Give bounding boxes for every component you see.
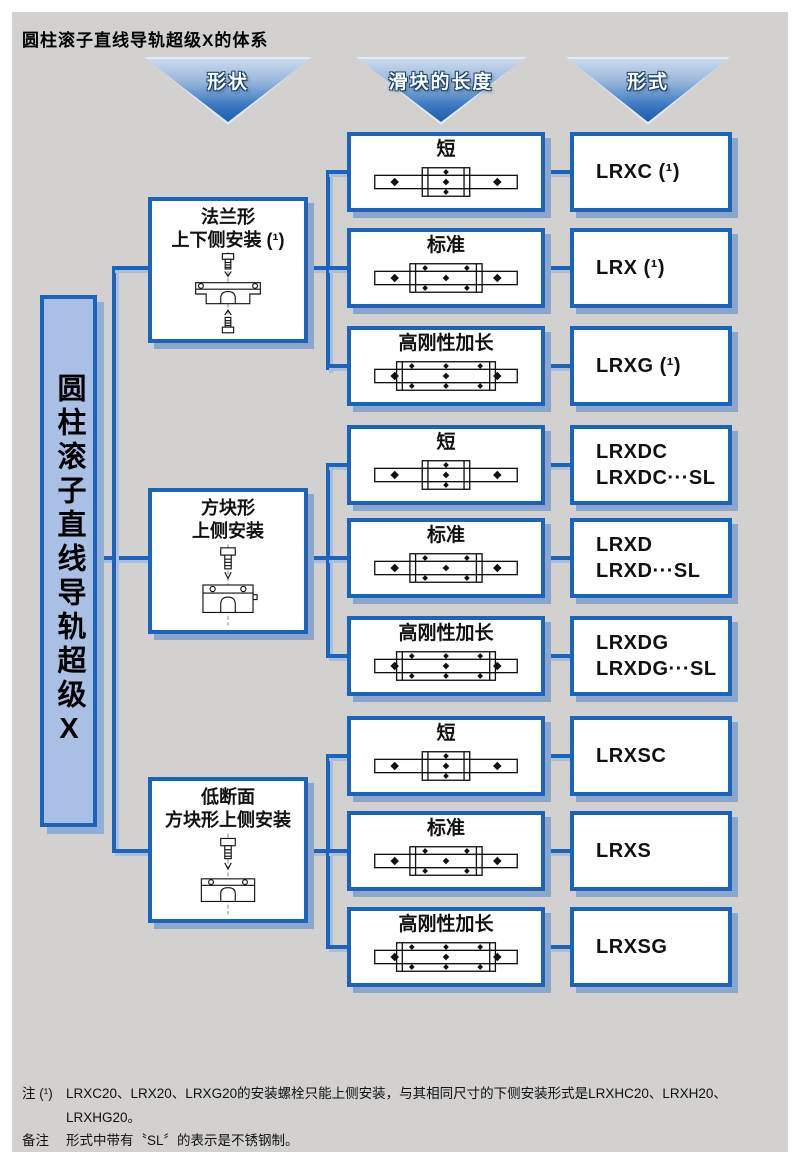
connector-trunk: [112, 266, 116, 853]
model-box-lrxsg: LRXSG: [570, 907, 732, 987]
shape-box-square: 方块形 上侧安装: [148, 488, 308, 634]
footnote-1-label: 注 (¹): [22, 1082, 66, 1129]
page-title: 圆柱滚子直线导轨超级X的体系: [22, 26, 268, 51]
footnotes: 注 (¹) LRXC20、LRX20、LRXG20的安装螺栓只能上侧安装，与其相…: [22, 1082, 770, 1153]
connector-length-to-model-row1: [543, 170, 572, 174]
length-label: 短: [436, 432, 455, 454]
length-label: 高刚性加长: [398, 333, 493, 355]
connector-root-to-shape2: [92, 556, 150, 560]
connector-length-to-model-row2: [543, 266, 572, 270]
connector-group1-spine: [326, 170, 330, 370]
footnote-1: 注 (¹) LRXC20、LRX20、LRXG20的安装螺栓只能上侧安装，与其相…: [22, 1082, 770, 1129]
shape-header-arrow: 形状: [144, 57, 312, 125]
connector-spine-to-length-row5: [326, 556, 348, 560]
connector-spine-to-length-row7: [326, 754, 348, 758]
rail-block-drawing-standard: [370, 840, 522, 887]
length-label: 标准: [427, 525, 465, 547]
length-box-row7: 短: [347, 716, 545, 796]
connector-length-to-model-row7: [543, 754, 572, 758]
length-box-row3: 高刚性加长: [347, 326, 545, 406]
connector-length-to-model-row5: [543, 556, 572, 560]
shape-header-label: 形状: [144, 67, 312, 94]
model-label: LRXSG: [596, 934, 728, 960]
length-label: 标准: [427, 235, 465, 257]
model-label-2: LRXDC···SL: [596, 465, 728, 491]
type-header-arrow: 形式: [566, 57, 730, 125]
model-label: LRXDC: [596, 439, 728, 465]
low-profile-mount-diagram: [174, 832, 282, 916]
connector-spine-to-length-row8: [326, 849, 348, 853]
length-label: 标准: [427, 818, 465, 840]
length-box-row8: 标准: [347, 811, 545, 891]
footnote-2: 备注 形式中带有〝SL〞的表示是不锈钢制。: [22, 1129, 770, 1153]
slider-length-header-label: 滑块的长度: [356, 67, 526, 94]
model-box-lrxs: LRXS: [570, 811, 732, 891]
model-label: LRX (¹): [596, 255, 728, 281]
rail-block-drawing-long: [370, 645, 522, 692]
connector-length-to-model-row3: [543, 364, 572, 368]
model-label: LRXS: [596, 838, 728, 864]
slider-length-header-arrow: 滑块的长度: [356, 57, 526, 125]
connector-length-to-model-row9: [543, 945, 572, 949]
model-label-2: LRXDG···SL: [596, 656, 728, 682]
length-box-row2: 标准: [347, 228, 545, 308]
shape-label-line2: 方块形上侧安装: [165, 809, 291, 832]
root-product-label: 圆柱滚子直线导轨超级X: [54, 373, 83, 750]
connector-spine-to-length-row3: [326, 364, 348, 368]
connector-spine-to-length-row2: [326, 266, 348, 270]
rail-block-drawing-long: [370, 936, 522, 983]
connector-spine-to-length-row1: [326, 170, 348, 174]
model-label: LRXSC: [596, 743, 728, 769]
length-label: 短: [436, 723, 455, 745]
connector-length-to-model-row8: [543, 849, 572, 853]
model-box-lrxdc: LRXDC LRXDC···SL: [570, 425, 732, 505]
length-box-row5: 标准: [347, 518, 545, 598]
shape-label-line1: 法兰形: [201, 206, 255, 229]
footnote-2-text: 形式中带有〝SL〞的表示是不锈钢制。: [66, 1129, 770, 1153]
shape-label-line1: 方块形: [201, 497, 255, 520]
square-top-mount-diagram: [174, 543, 282, 627]
length-box-row9: 高刚性加长: [347, 907, 545, 987]
connector-length-to-model-row6: [543, 654, 572, 658]
rail-block-drawing-standard: [370, 257, 522, 304]
model-box-lrxc: LRXC (¹): [570, 132, 732, 212]
model-label: LRXD: [596, 532, 728, 558]
rail-block-drawing-short: [370, 745, 522, 792]
length-box-row4: 短: [347, 425, 545, 505]
model-box-lrx: LRX (¹): [570, 228, 732, 308]
rail-block-drawing-short: [370, 454, 522, 501]
length-label: 短: [436, 139, 455, 161]
rail-block-drawing-short: [370, 161, 522, 208]
shape-label-line2: 上下侧安装 (¹): [172, 229, 285, 252]
model-label: LRXC (¹): [596, 159, 728, 185]
rail-block-drawing-standard: [370, 547, 522, 594]
connector-length-to-model-row4: [543, 463, 572, 467]
model-label: LRXG (¹): [596, 353, 728, 379]
flange-mount-diagram: [174, 252, 282, 336]
connector-trunk-to-shape3: [112, 849, 150, 853]
model-box-lrxd: LRXD LRXD···SL: [570, 518, 732, 598]
connector-group2-spine: [326, 463, 330, 658]
type-header-label: 形式: [566, 67, 730, 94]
length-box-row6: 高刚性加长: [347, 616, 545, 696]
connector-trunk-to-shape1: [112, 266, 150, 270]
length-label: 高刚性加长: [398, 623, 493, 645]
shape-box-low-profile: 低断面 方块形上侧安装: [148, 777, 308, 923]
model-label: LRXDG: [596, 630, 728, 656]
shape-label-line1: 低断面: [201, 786, 255, 809]
connector-spine-to-length-row6: [326, 654, 348, 658]
footnote-1-text: LRXC20、LRX20、LRXG20的安装螺栓只能上侧安装，与其相同尺寸的下侧…: [66, 1082, 770, 1129]
root-product-box: 圆柱滚子直线导轨超级X: [40, 295, 97, 827]
shape-label-line2: 上侧安装: [192, 520, 264, 543]
model-box-lrxsc: LRXSC: [570, 716, 732, 796]
model-box-lrxg: LRXG (¹): [570, 326, 732, 406]
connector-spine-to-length-row9: [326, 945, 348, 949]
model-label-2: LRXD···SL: [596, 558, 728, 584]
shape-box-flange: 法兰形 上下侧安装 (¹): [148, 197, 308, 343]
model-box-lrxdg: LRXDG LRXDG···SL: [570, 616, 732, 696]
connector-spine-to-length-row4: [326, 463, 348, 467]
rail-block-drawing-long: [370, 355, 522, 402]
length-label: 高刚性加长: [398, 914, 493, 936]
length-box-row1: 短: [347, 132, 545, 212]
footnote-2-label: 备注: [22, 1129, 66, 1153]
